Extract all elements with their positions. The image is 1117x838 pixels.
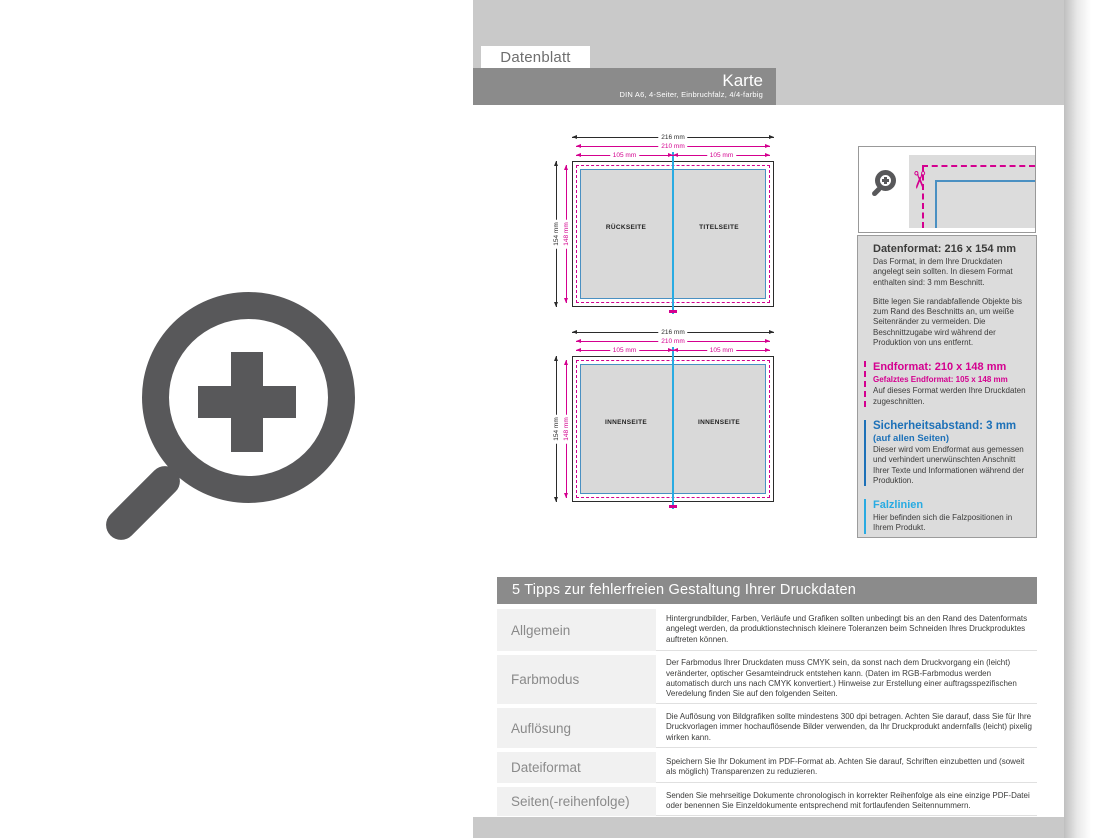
panel-label-left: INNENSEITE [580, 419, 672, 426]
section-subheading: Gefalztes Endformat: 105 x 148 mm [873, 375, 1026, 385]
dimension-label: 154 mm [553, 414, 561, 443]
zoom-in-icon-small [872, 170, 896, 200]
dimension-label: 148 mm [563, 219, 571, 248]
dimension-label: 216 mm [658, 329, 687, 337]
section-heading: Endformat: 210 x 148 mm [873, 361, 1026, 374]
dimension-total-height: 154 mm [556, 161, 557, 307]
section-endformat: Endformat: 210 x 148 mm Gefalztes Endfor… [864, 361, 1026, 407]
dimension-trim-height: 148 mm [566, 165, 567, 303]
fold-line [672, 347, 674, 509]
section-paragraph: Auf dieses Format werden Ihre Druckdaten… [873, 386, 1026, 407]
tips-row-label: Auflösung [497, 708, 656, 748]
dimension-trim-height: 148 mm [566, 360, 567, 498]
section-paragraph: Dieser wird vom Endformat aus gemessen u… [873, 445, 1026, 486]
tips-row-label: Seiten(-reihenfolge) [497, 787, 656, 816]
page-edge-shadow [1064, 0, 1094, 838]
section-heading: Datenformat: 216 x 154 mm [873, 243, 1026, 256]
tips-table: Allgemein Hintergrundbilder, Farben, Ver… [497, 609, 1037, 820]
dimension-label: 210 mm [658, 338, 687, 346]
magnifier-handle [871, 186, 882, 197]
dimension-half-width-right: 105 mm [673, 350, 770, 351]
table-row: Auflösung Die Auflösung von Bildgrafiken… [497, 708, 1037, 748]
zoom-in-icon[interactable] [100, 285, 360, 550]
tips-row-text: Die Auflösung von Bildgrafiken sollte mi… [656, 708, 1037, 748]
table-row: Dateiformat Speichern Sie Ihr Dokument i… [497, 752, 1037, 783]
page-title: Karte [473, 71, 763, 90]
table-row: Seiten(-reihenfolge) Senden Sie mehrseit… [497, 787, 1037, 816]
section-heading: Falzlinien [873, 499, 1026, 512]
section-subheading: (auf allen Seiten) [873, 434, 1026, 444]
tab-datenblatt[interactable]: Datenblatt [481, 46, 590, 68]
scissors-icon: ✂ [906, 170, 930, 190]
tips-row-text: Senden Sie mehrseitige Dokumente chronol… [656, 787, 1037, 816]
tips-row-text: Speichern Sie Ihr Dokument im PDF-Format… [656, 752, 1037, 783]
spread-diagram-outer: 216 mm 210 mm 105 mm 105 mm 154 mm 148 m… [548, 125, 783, 317]
panel-label-right: INNENSEITE [673, 419, 765, 426]
preview-bleed-line-horizontal [922, 165, 1035, 167]
magnifier-handle [100, 460, 186, 546]
dimension-trim-width: 210 mm [576, 146, 770, 147]
tips-row-text: Der Farbmodus Ihrer Druckdaten muss CMYK… [656, 655, 1037, 704]
dimension-label: 210 mm [658, 143, 687, 151]
fold-mark [669, 505, 677, 508]
section-paragraph: Hier befinden sich die Falzpositionen in… [873, 513, 1026, 534]
datasheet-page: Datenblatt Karte DIN A6, 4-Seiter, Einbr… [0, 0, 1117, 838]
panel-label-right: TITELSEITE [673, 224, 765, 231]
dimension-half-width-left: 105 mm [576, 155, 673, 156]
fold-line [672, 152, 674, 314]
dimension-half-width-left: 105 mm [576, 350, 673, 351]
plus-glyph-horizontal [198, 386, 296, 418]
tips-row-text: Hintergrundbilder, Farben, Verläufe und … [656, 609, 1037, 651]
dimension-total-width: 216 mm [572, 137, 774, 138]
table-row: Farbmodus Der Farbmodus Ihrer Druckdaten… [497, 655, 1037, 704]
dimension-half-width-right: 105 mm [673, 155, 770, 156]
tips-row-label: Dateiformat [497, 752, 656, 783]
section-datenformat: Datenformat: 216 x 154 mm Das Format, in… [873, 243, 1026, 348]
dimension-label: 105 mm [707, 347, 736, 355]
dimension-label: 216 mm [658, 134, 687, 142]
dimension-total-height: 154 mm [556, 356, 557, 502]
dimension-label: 148 mm [563, 414, 571, 443]
tips-row-label: Allgemein [497, 609, 656, 651]
dimension-label: 105 mm [707, 152, 736, 160]
dimension-label: 154 mm [553, 219, 561, 248]
dimension-total-width: 216 mm [572, 332, 774, 333]
page-bottom-band [473, 817, 1064, 838]
section-paragraph: Bitte legen Sie randabfallende Objekte b… [873, 297, 1026, 348]
tips-row-label: Farbmodus [497, 655, 656, 704]
spread-diagram-inner: 216 mm 210 mm 105 mm 105 mm 154 mm 148 m… [548, 320, 783, 512]
section-falzlinien: Falzlinien Hier befinden sich die Falzpo… [864, 499, 1026, 534]
dimension-label: 105 mm [610, 347, 639, 355]
dimension-label: 105 mm [610, 152, 639, 160]
format-info-panel: Datenformat: 216 x 154 mm Das Format, in… [857, 235, 1037, 538]
section-sicherheitsabstand: Sicherheitsabstand: 3 mm (auf allen Seit… [864, 420, 1026, 486]
table-row: Allgemein Hintergrundbilder, Farben, Ver… [497, 609, 1037, 651]
section-heading: Sicherheitsabstand: 3 mm [873, 420, 1026, 433]
dimension-trim-width: 210 mm [576, 341, 770, 342]
fold-mark [669, 310, 677, 313]
bleed-detail-preview: ✂ [858, 146, 1036, 233]
tips-header-bar: 5 Tipps zur fehlerfreien Gestaltung Ihre… [497, 577, 1037, 604]
panel-label-left: RÜCKSEITE [580, 224, 672, 231]
product-title-band: Karte DIN A6, 4-Seiter, Einbruchfalz, 4/… [473, 68, 776, 105]
page-subtitle: DIN A6, 4-Seiter, Einbruchfalz, 4/4-farb… [473, 90, 763, 100]
preview-trim-line-horizontal [935, 180, 1035, 182]
preview-trim-line-vertical [935, 180, 937, 228]
section-paragraph: Das Format, in dem Ihre Druckdaten angel… [873, 257, 1026, 288]
